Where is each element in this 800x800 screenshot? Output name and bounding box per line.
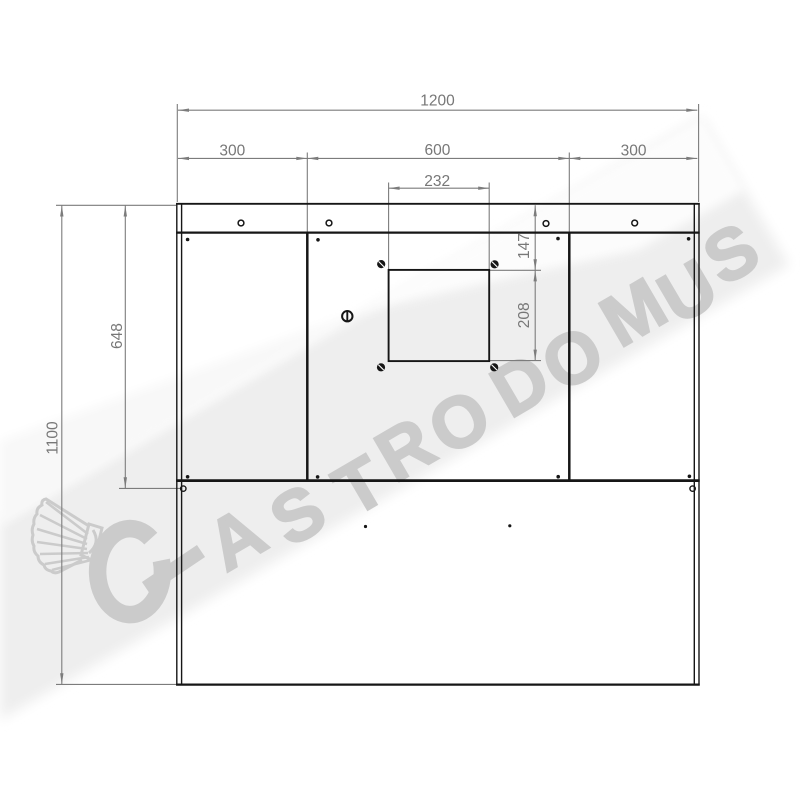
svg-text:300: 300 [219,142,245,159]
svg-text:147: 147 [516,233,533,259]
svg-text:232: 232 [424,173,450,190]
svg-text:600: 600 [424,142,450,159]
svg-text:300: 300 [621,143,647,160]
svg-text:1200: 1200 [420,93,455,110]
svg-text:208: 208 [516,302,533,328]
svg-text:648: 648 [109,323,126,349]
svg-text:1100: 1100 [45,421,62,455]
